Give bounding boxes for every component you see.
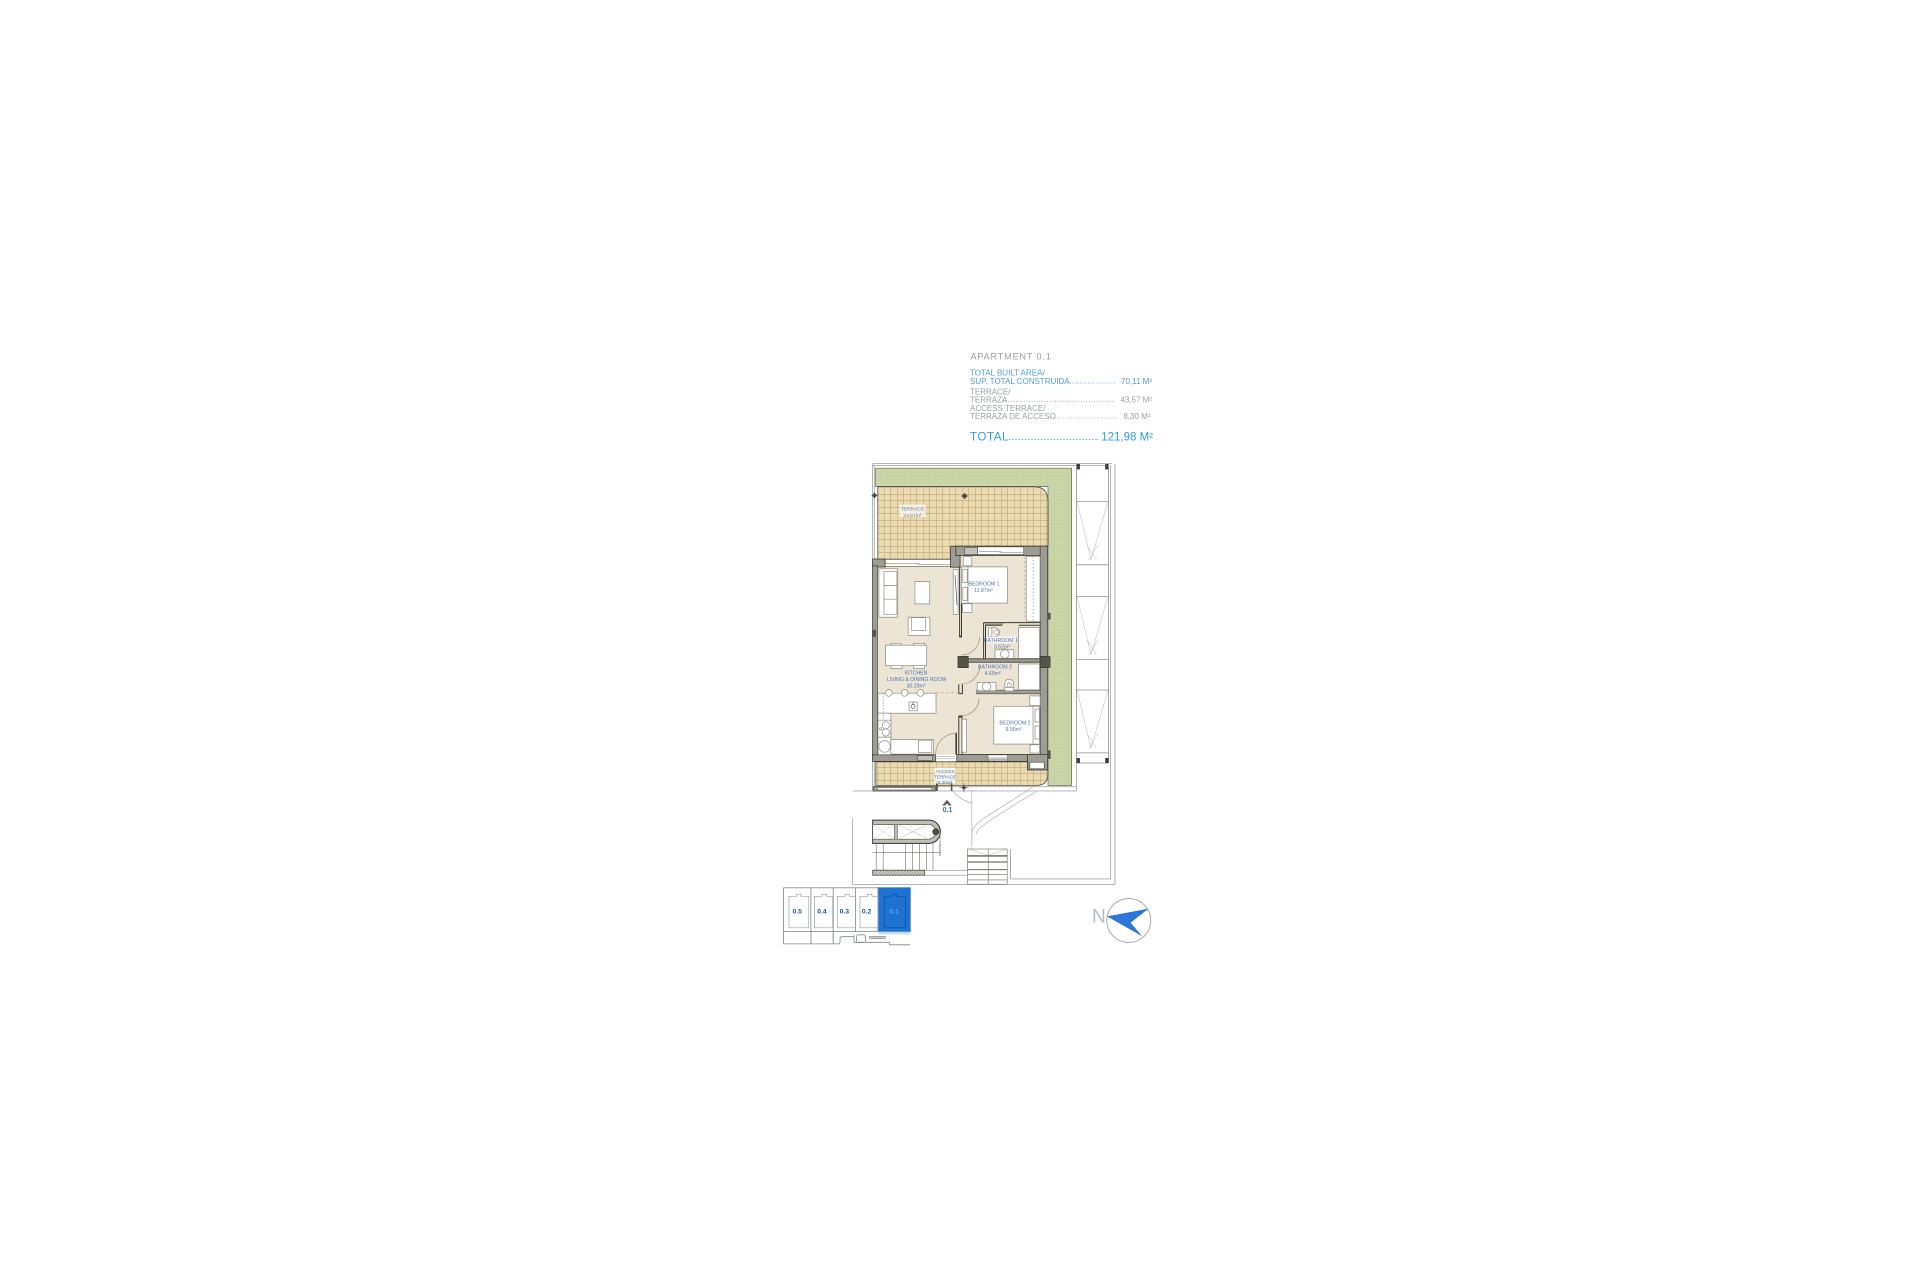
svg-text:43,57 M²: 43,57 M² [1120,395,1152,404]
svg-text:TOTAL: TOTAL [970,432,1009,444]
svg-text:0.1: 0.1 [889,909,899,916]
svg-text:3.52m²: 3.52m² [994,645,1010,651]
svg-text:BATHROOM 1: BATHROOM 1 [984,638,1018,644]
svg-text:9.00m²: 9.00m² [1006,727,1022,733]
svg-text:TERRAZA: TERRAZA [970,395,1008,404]
svg-text:APARTMENT 0.1: APARTMENT 0.1 [971,351,1052,361]
svg-text:70,11 M²: 70,11 M² [1121,377,1152,386]
svg-text:0.1: 0.1 [943,807,953,814]
svg-text:BEDROOM 2: BEDROOM 2 [999,721,1030,727]
svg-text:TOTAL BUILT AREA/: TOTAL BUILT AREA/ [970,368,1045,377]
svg-text:BATHROOM 2: BATHROOM 2 [978,665,1012,671]
svg-text:11.87m²: 11.87m² [974,588,993,594]
svg-text:0.5: 0.5 [792,909,802,916]
svg-text:30.29m²: 30.29m² [906,684,925,690]
svg-text:0.3: 0.3 [840,909,850,916]
svg-text:8,30 M²: 8,30 M² [1123,412,1150,421]
svg-text:BEDROOM 1: BEDROOM 1 [968,582,999,588]
svg-text:43.57m²: 43.57m² [904,513,922,519]
svg-text:TERRACE: TERRACE [934,775,956,780]
svg-text:SUP. TOTAL CONSTRUIDA: SUP. TOTAL CONSTRUIDA [970,377,1070,386]
svg-text:TERRACE: TERRACE [901,507,924,513]
svg-text:TERRAZA DE ACCESO: TERRAZA DE ACCESO [970,412,1056,421]
svg-text:N: N [1092,907,1106,928]
svg-text:KITCHEN: KITCHEN [905,671,928,677]
svg-text:0.2: 0.2 [862,909,872,916]
svg-text:121,98 M²: 121,98 M² [1101,432,1153,444]
svg-text:ACCESS: ACCESS [936,769,955,774]
svg-text:4.65m²: 4.65m² [985,671,1001,677]
svg-text:LIVING & DINING ROOM: LIVING & DINING ROOM [887,677,946,683]
svg-text:8.30m²: 8.30m² [938,780,953,785]
svg-text:0.4: 0.4 [817,909,827,916]
